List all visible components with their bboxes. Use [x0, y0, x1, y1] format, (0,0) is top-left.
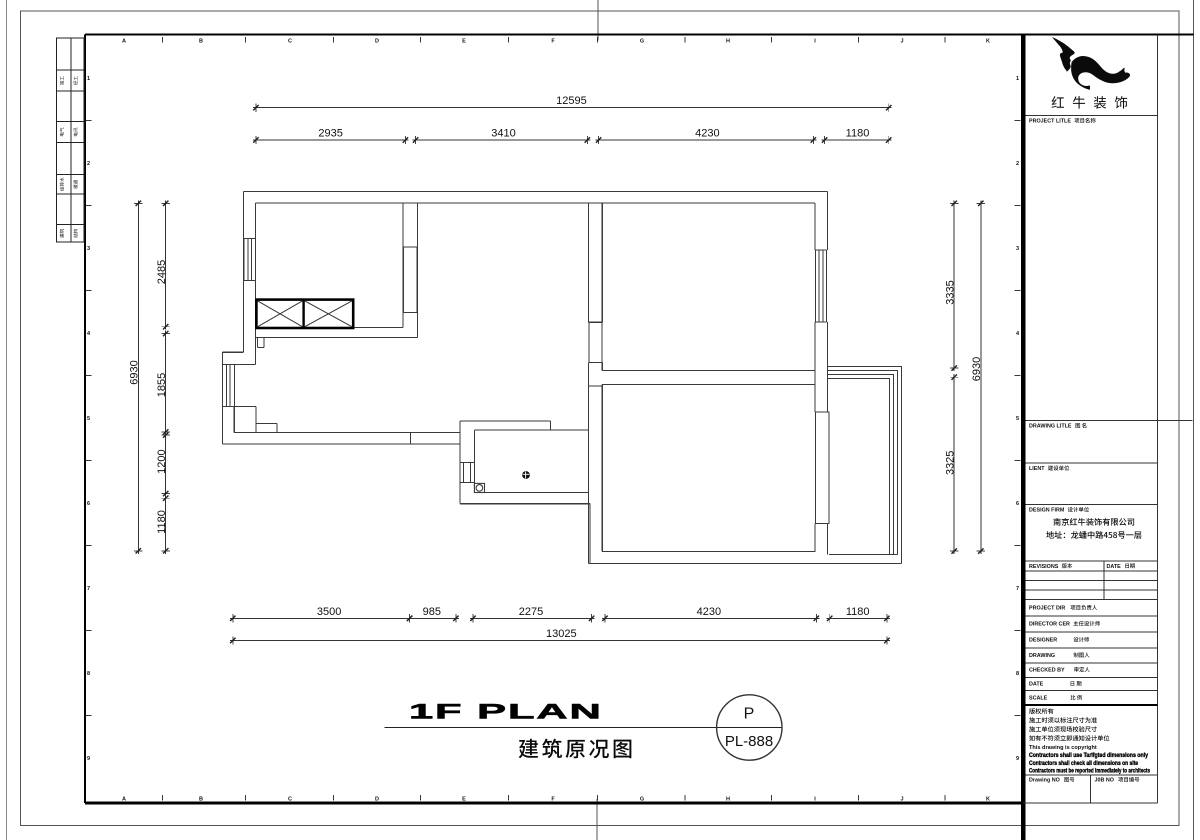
svg-text:8: 8 [87, 671, 90, 677]
svg-text:K: K [986, 39, 990, 45]
svg-text:E: E [462, 39, 466, 45]
svg-text:12595: 12595 [556, 95, 587, 107]
svg-text:2485: 2485 [156, 260, 168, 284]
svg-text:8: 8 [1016, 671, 1019, 677]
svg-text:1F PLAN: 1F PLAN [409, 700, 603, 724]
svg-text:J: J [900, 39, 903, 45]
svg-text:3335: 3335 [945, 280, 957, 304]
svg-text:1180: 1180 [846, 606, 870, 618]
svg-text:PROJECT LITLE: PROJECT LITLE [1029, 119, 1071, 125]
svg-text:PL-888: PL-888 [725, 733, 773, 750]
svg-text:2935: 2935 [318, 128, 342, 140]
svg-text:5: 5 [1016, 416, 1019, 422]
svg-text:H: H [726, 39, 730, 45]
svg-text:LIENT: LIENT [1029, 466, 1045, 472]
svg-text:1: 1 [1016, 76, 1019, 82]
svg-text:3: 3 [1016, 246, 1019, 252]
svg-text:G: G [640, 39, 644, 45]
svg-text:3500: 3500 [317, 606, 341, 618]
svg-text:A: A [122, 39, 126, 45]
svg-text:13025: 13025 [546, 628, 577, 640]
svg-text:C: C [288, 797, 292, 803]
svg-text:DATE: DATE [1029, 682, 1044, 688]
svg-text:E: E [462, 797, 466, 803]
svg-text:Contractors shall use Tarifgte: Contractors shall use Tarifgted dimensio… [1029, 752, 1148, 759]
svg-text:1855: 1855 [156, 373, 168, 397]
svg-text:6930: 6930 [129, 360, 141, 384]
svg-text:9: 9 [87, 756, 90, 762]
svg-text:SCALE: SCALE [1029, 696, 1048, 702]
svg-text:7: 7 [87, 586, 90, 592]
svg-text:9: 9 [1016, 756, 1019, 762]
svg-text:5: 5 [87, 416, 90, 422]
svg-text:P: P [744, 706, 755, 723]
svg-text:D: D [375, 797, 379, 803]
svg-text:Contractors shall check all di: Contractors shall check all dimensions o… [1029, 760, 1138, 767]
svg-text:CHECKED BY: CHECKED BY [1029, 668, 1065, 674]
svg-text:This drawing is copyright: This drawing is copyright [1029, 745, 1097, 751]
svg-text:K: K [986, 797, 990, 803]
svg-text:I: I [814, 797, 816, 803]
svg-text:6: 6 [1016, 501, 1019, 507]
svg-text:J0B NO: J0B NO [1095, 778, 1114, 784]
svg-text:PROJECT DIR: PROJECT DIR [1029, 606, 1065, 612]
svg-text:B: B [199, 797, 203, 803]
svg-text:F: F [551, 39, 555, 45]
svg-text:D: D [375, 39, 379, 45]
svg-text:H: H [726, 797, 730, 803]
svg-text:DRAWING LITLE: DRAWING LITLE [1029, 424, 1072, 430]
svg-text:6: 6 [87, 501, 90, 507]
svg-text:1200: 1200 [156, 449, 168, 473]
svg-text:DRAWING: DRAWING [1029, 653, 1055, 659]
svg-text:4230: 4230 [697, 606, 721, 618]
svg-text:G: G [640, 797, 644, 803]
svg-text:3325: 3325 [945, 451, 957, 475]
svg-text:7: 7 [1016, 586, 1019, 592]
svg-text:3410: 3410 [491, 128, 515, 140]
svg-text:DIRECTOR CER: DIRECTOR CER [1029, 622, 1070, 628]
svg-text:1180: 1180 [156, 510, 168, 534]
svg-text:J: J [900, 797, 903, 803]
svg-text:985: 985 [423, 606, 441, 618]
svg-text:Drawing NO: Drawing NO [1029, 778, 1060, 784]
svg-text:DATE: DATE [1107, 564, 1122, 570]
svg-text:A: A [122, 797, 126, 803]
svg-text:REVISIONS: REVISIONS [1029, 564, 1059, 570]
svg-text:4: 4 [1016, 331, 1020, 337]
svg-text:1180: 1180 [846, 128, 870, 140]
svg-text:DESIGN FIRM: DESIGN FIRM [1029, 508, 1065, 514]
svg-text:4: 4 [87, 331, 91, 337]
svg-text:DESIGNER: DESIGNER [1029, 638, 1057, 644]
svg-text:I: I [814, 39, 816, 45]
svg-text:3: 3 [87, 246, 90, 252]
svg-text:2275: 2275 [519, 606, 543, 618]
svg-text:C: C [288, 39, 292, 45]
svg-text:6930: 6930 [971, 357, 983, 381]
svg-text:1: 1 [87, 76, 90, 82]
svg-text:F: F [551, 797, 555, 803]
svg-text:2: 2 [1016, 161, 1019, 167]
svg-text:4230: 4230 [695, 128, 719, 140]
svg-text:Contractors must be reported i: Contractors must be reported immediately… [1029, 767, 1150, 774]
svg-text:2: 2 [87, 161, 90, 167]
svg-text:B: B [199, 39, 203, 45]
